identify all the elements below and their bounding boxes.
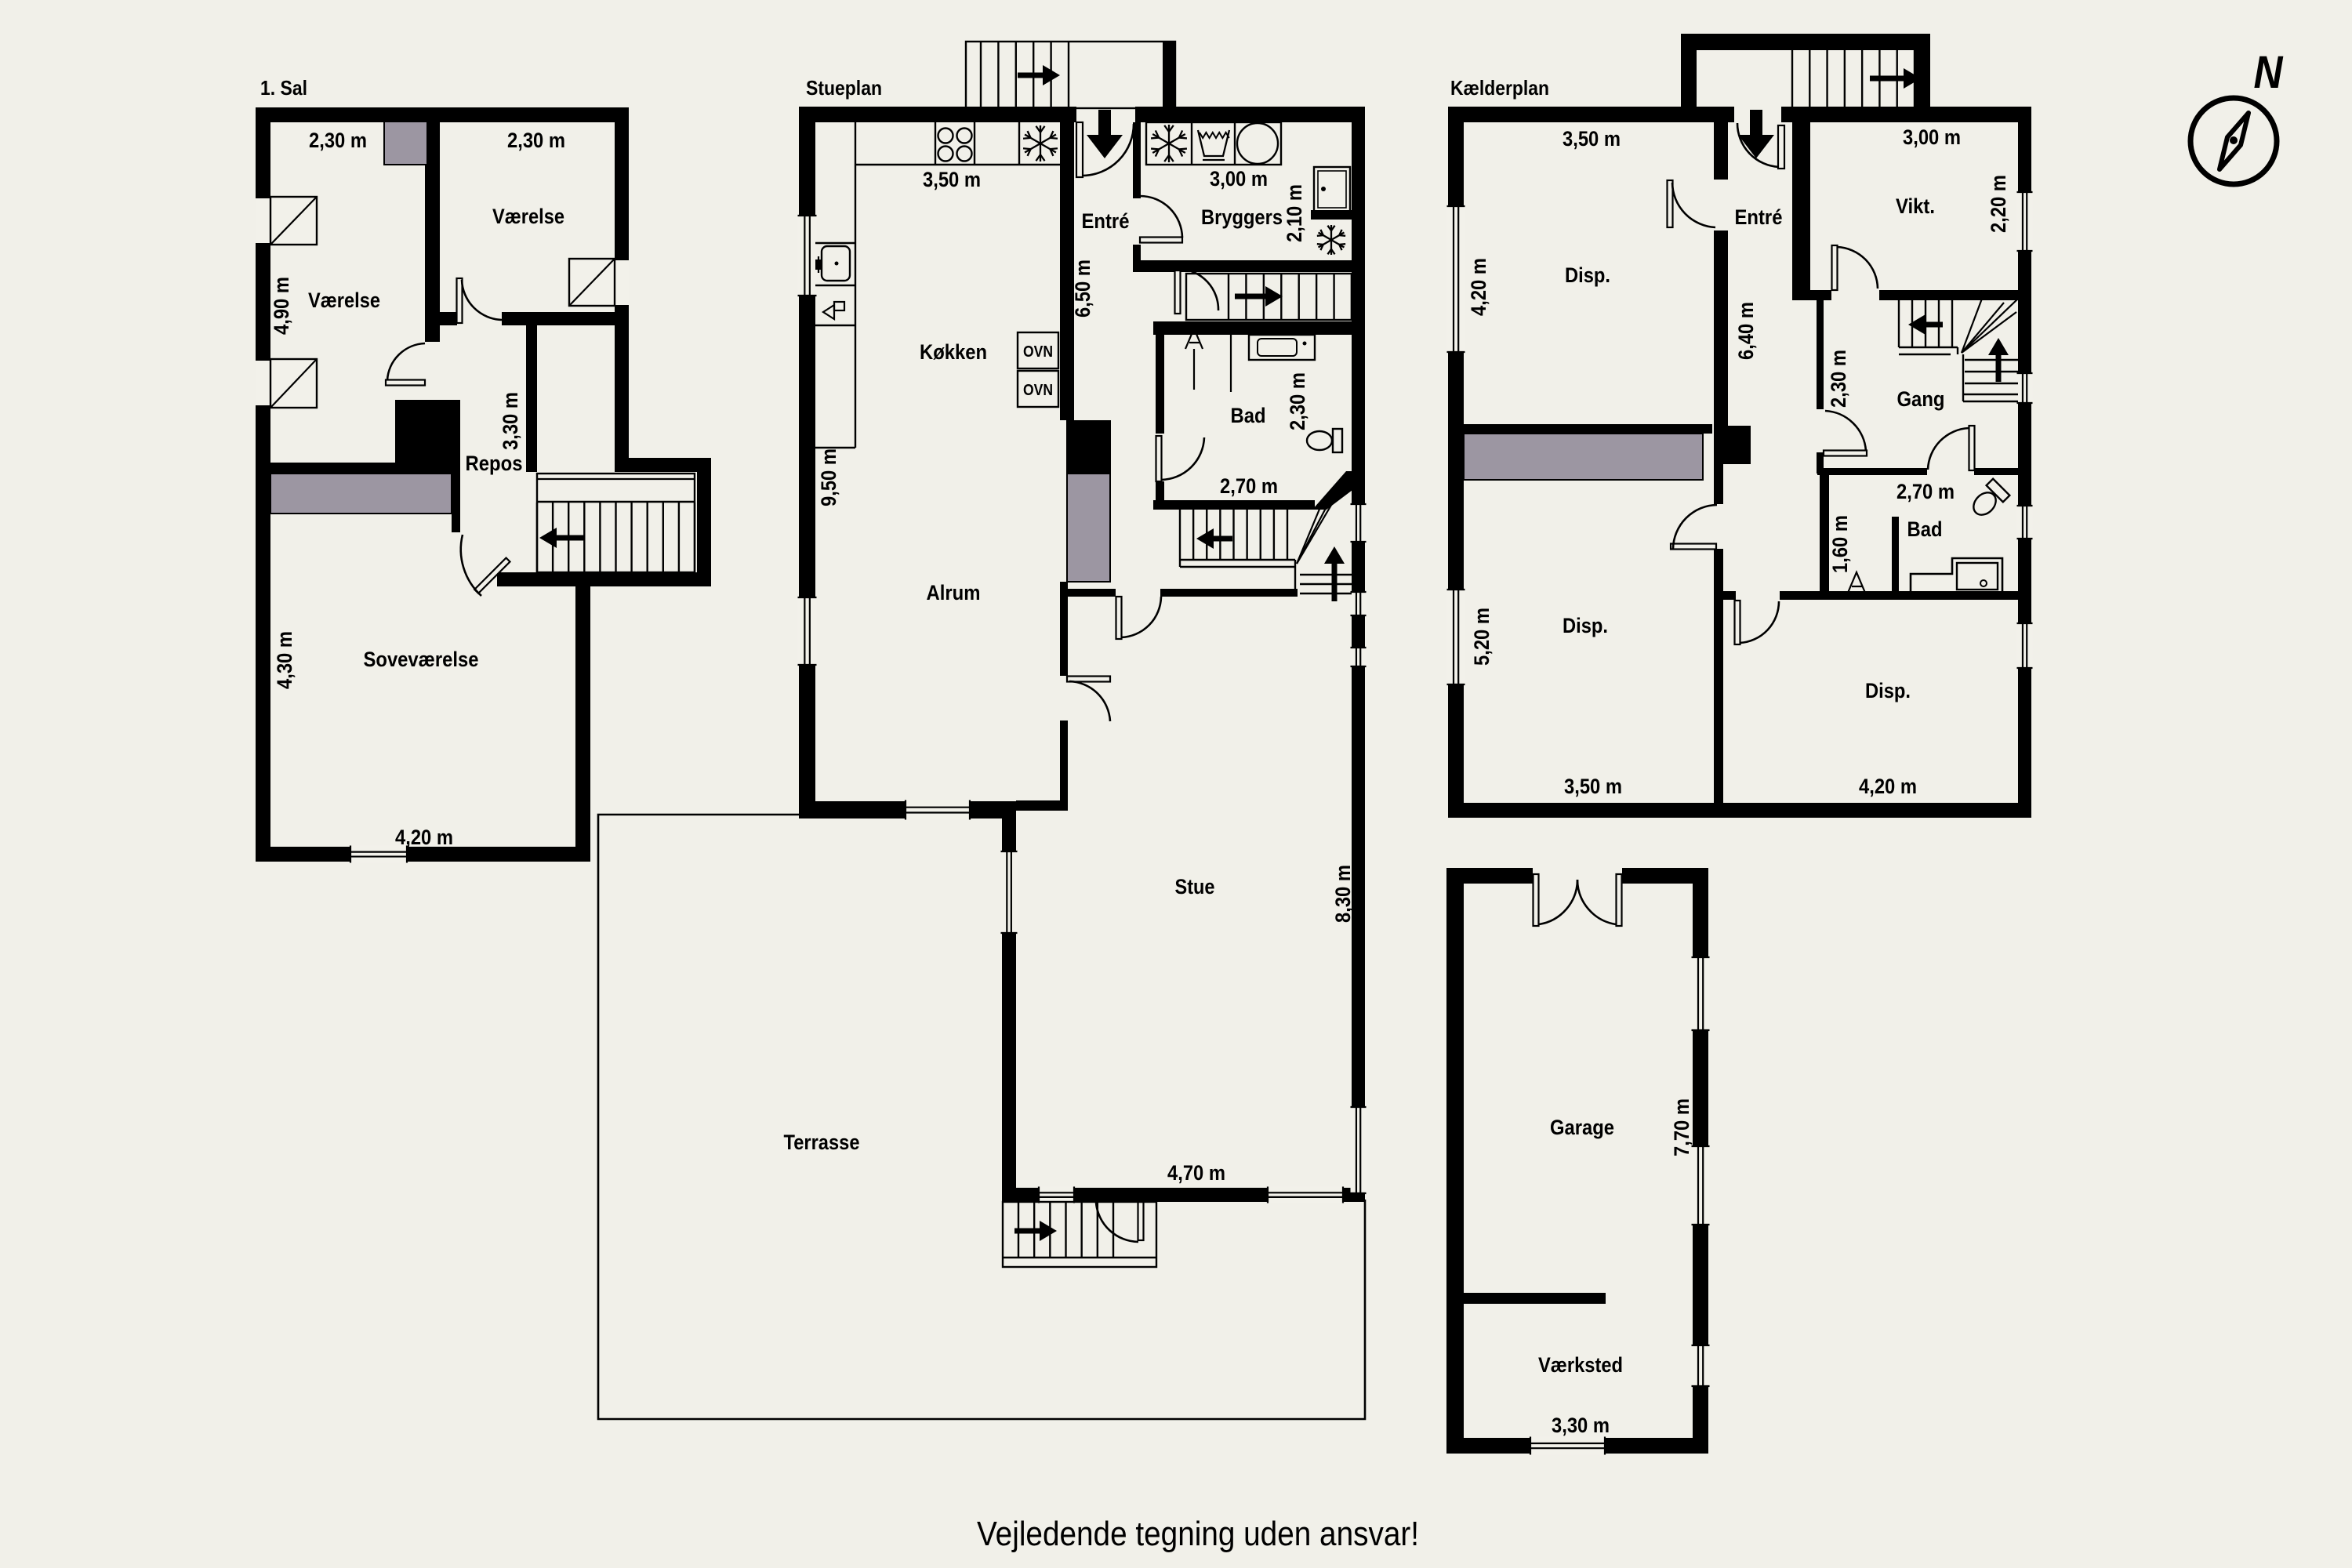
svg-text:Bad: Bad [1907,517,1943,541]
svg-text:3,30 m: 3,30 m [1552,1414,1610,1437]
svg-text:Bad: Bad [1231,404,1266,427]
svg-text:Gang: Gang [1897,387,1945,411]
svg-text:6,50 m: 6,50 m [1071,260,1094,318]
svg-text:2,30 m: 2,30 m [1827,350,1850,408]
svg-text:8,30 m: 8,30 m [1331,865,1355,923]
svg-text:Stueplan: Stueplan [806,76,882,100]
svg-text:Stue: Stue [1175,875,1215,898]
svg-text:2,10 m: 2,10 m [1283,184,1306,242]
svg-text:4,20 m: 4,20 m [1859,775,1917,798]
svg-text:1. Sal: 1. Sal [260,76,307,100]
svg-text:Soveværelse: Soveværelse [364,648,479,671]
svg-text:2,30 m: 2,30 m [1286,372,1309,430]
svg-text:Entré: Entré [1082,209,1130,233]
svg-text:2,70 m: 2,70 m [1220,474,1278,498]
svg-text:9,50 m: 9,50 m [817,448,840,506]
svg-text:2,20 m: 2,20 m [1987,175,2010,233]
svg-text:Værelse: Værelse [492,205,564,228]
svg-text:Disp.: Disp. [1563,614,1608,637]
svg-text:Repos: Repos [466,452,523,475]
svg-text:3,50 m: 3,50 m [923,168,981,191]
svg-text:OVN: OVN [1023,382,1053,399]
svg-text:Entré: Entré [1735,205,1783,229]
svg-text:Køkken: Køkken [920,340,987,364]
svg-text:7,70 m: 7,70 m [1670,1098,1693,1156]
svg-text:4,70 m: 4,70 m [1167,1161,1225,1185]
svg-text:2,30 m: 2,30 m [507,129,565,152]
svg-text:Vikt.: Vikt. [1896,194,1935,218]
svg-text:Vejledende tegning uden ansvar: Vejledende tegning uden ansvar! [977,1515,1419,1553]
svg-text:4,30 m: 4,30 m [273,631,296,689]
svg-text:3,00 m: 3,00 m [1903,125,1961,149]
svg-text:OVN: OVN [1023,343,1053,361]
svg-text:Kælderplan: Kælderplan [1450,76,1549,100]
svg-text:3,30 m: 3,30 m [499,392,522,450]
svg-text:4,20 m: 4,20 m [395,826,453,849]
svg-text:Disp.: Disp. [1865,679,1911,702]
svg-text:5,20 m: 5,20 m [1470,608,1494,666]
svg-text:2,30 m: 2,30 m [309,129,367,152]
svg-text:1,60 m: 1,60 m [1828,515,1852,573]
svg-text:Bryggers: Bryggers [1201,205,1283,229]
svg-text:Garage: Garage [1550,1116,1614,1139]
svg-text:2,70 m: 2,70 m [1896,480,1955,503]
svg-text:3,50 m: 3,50 m [1563,127,1621,151]
svg-text:6,40 m: 6,40 m [1734,302,1758,360]
svg-text:N: N [2254,47,2284,98]
svg-text:Alrum: Alrum [927,581,981,604]
svg-text:Terrasse: Terrasse [784,1131,860,1154]
svg-text:Disp.: Disp. [1565,263,1610,287]
svg-text:3,50 m: 3,50 m [1564,775,1622,798]
svg-text:4,20 m: 4,20 m [1467,258,1490,316]
svg-text:Værelse: Værelse [308,289,380,312]
svg-text:4,90 m: 4,90 m [270,277,293,335]
svg-text:3,00 m: 3,00 m [1210,167,1268,191]
svg-text:Værksted: Værksted [1538,1353,1623,1377]
